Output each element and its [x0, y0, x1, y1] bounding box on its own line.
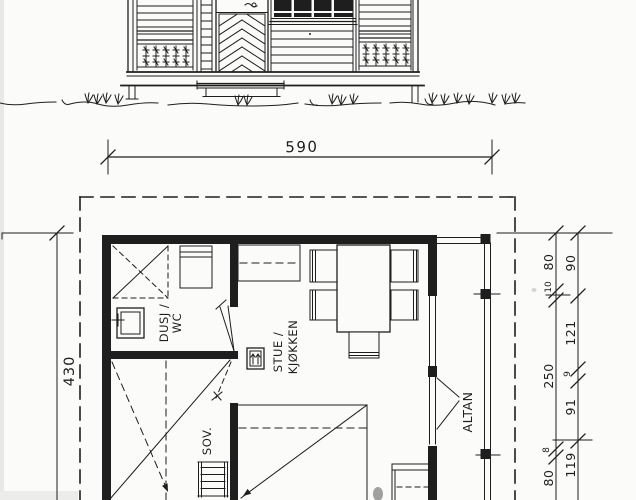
- chair: [310, 290, 337, 320]
- room-label-bathroom-1: DUSJ /: [157, 304, 171, 343]
- room-label-living-1: STUE /: [271, 332, 285, 373]
- front-elevation: [0, 0, 525, 106]
- corner-trim-strip: [197, 0, 212, 72]
- railing-balusters: [143, 46, 189, 67]
- chair: [391, 250, 418, 282]
- dim-chain-outer-0: 90: [563, 255, 578, 272]
- balcony-railing: [437, 234, 500, 500]
- balcony: ALTAN: [437, 234, 500, 500]
- dim-590-label: 590: [285, 138, 318, 157]
- toilet: [180, 246, 212, 288]
- elevation-left-panel: [137, 0, 193, 70]
- elevation-right-panel: [359, 0, 411, 70]
- deck-and-foundation: [121, 72, 424, 102]
- room-label-balcony: ALTAN: [460, 392, 475, 433]
- elevation-window: [268, 0, 357, 25]
- bench: [197, 81, 284, 97]
- bedroom-door-swing: [212, 362, 231, 400]
- bedroom: SOV.: [110, 360, 231, 500]
- railing-post: [481, 449, 491, 459]
- dim-chain-outer-1: 121: [563, 320, 578, 345]
- dim-chain-outer-2: 9: [563, 371, 573, 377]
- blueprint-svg: 590: [0, 0, 636, 500]
- dim-chain-inner-0: 80: [541, 254, 556, 271]
- dim-chain-inner-2: 250: [541, 363, 556, 388]
- scanned-architectural-drawing: 590: [0, 0, 636, 500]
- height-dimension: 430: [2, 226, 78, 500]
- room-label-bedroom: SOV.: [200, 427, 214, 455]
- railing-post: [481, 234, 491, 244]
- wood-stove-symbol: [247, 348, 264, 369]
- floor-plan: DUSJ / WC: [2, 197, 612, 500]
- dim-chain-inner-1: 10: [544, 281, 554, 293]
- chair: [349, 332, 379, 358]
- ground-grass: [0, 93, 525, 106]
- bathroom-door-swing: [216, 300, 234, 351]
- sofa-bed: [238, 405, 367, 500]
- scan-speck: [532, 288, 537, 292]
- dim-chain-outer-3: 91: [563, 399, 578, 416]
- dim-chain-inner-3: 8: [542, 447, 552, 453]
- bathroom: DUSJ / WC: [112, 246, 234, 351]
- scan-smudge: [373, 487, 383, 500]
- kitchen-counter: [238, 245, 300, 281]
- chair: [310, 250, 337, 282]
- chair: [391, 290, 418, 320]
- balcony-label-leader: [437, 378, 459, 429]
- scan-edge-shadow: [0, 0, 4, 500]
- railing-balusters: [363, 44, 409, 65]
- dim-430-label: 430: [62, 356, 78, 387]
- dining-set: [310, 245, 418, 358]
- bunk-ladder: [198, 462, 228, 497]
- shower-symbol: [113, 246, 168, 298]
- room-label-bathroom-2: WC: [170, 313, 184, 333]
- dining-table: [337, 245, 390, 332]
- width-dimension: 590: [101, 138, 499, 174]
- door-chevron-pattern: [219, 11, 265, 89]
- scan-corner-shade: [0, 491, 78, 500]
- sink: [112, 308, 144, 338]
- dim-chain-inner-4: 80: [541, 470, 556, 487]
- living-kitchen: STUE / KJØKKEN: [238, 245, 428, 500]
- dim-chain-outer-4: 119: [563, 452, 578, 477]
- room-label-living-2: KJØKKEN: [286, 320, 300, 374]
- corner-counter: [392, 464, 428, 500]
